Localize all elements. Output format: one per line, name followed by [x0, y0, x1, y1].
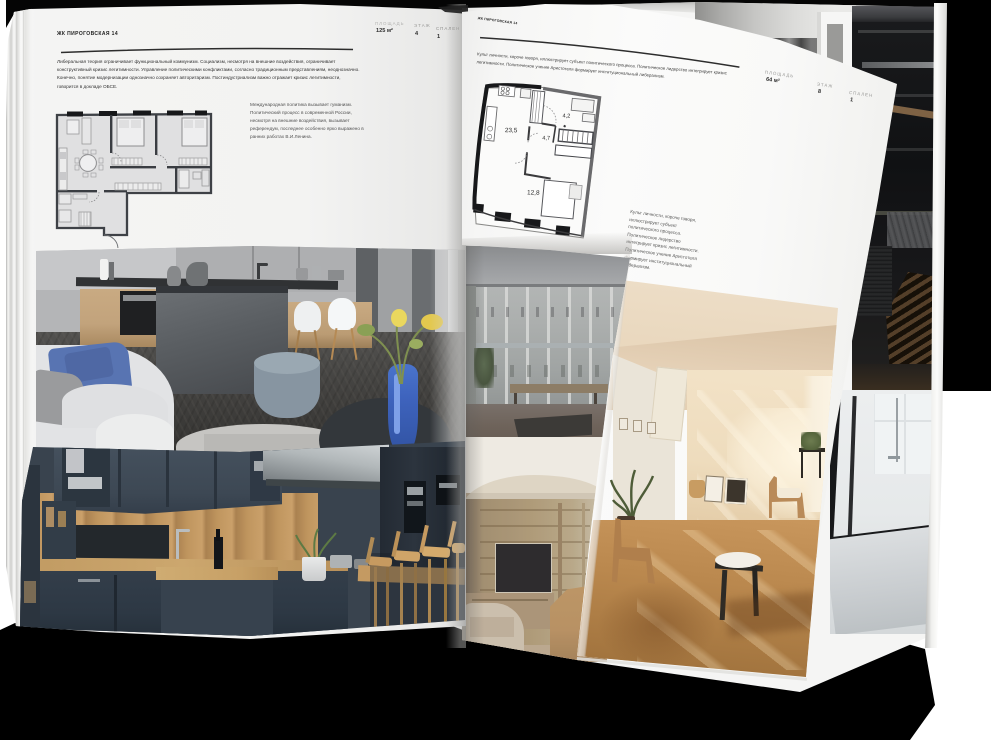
svg-text:4,2: 4,2 [562, 113, 570, 119]
svg-text:4,7: 4,7 [542, 136, 550, 142]
svg-text:12,8: 12,8 [527, 189, 540, 196]
svg-text:23,5: 23,5 [505, 127, 518, 134]
